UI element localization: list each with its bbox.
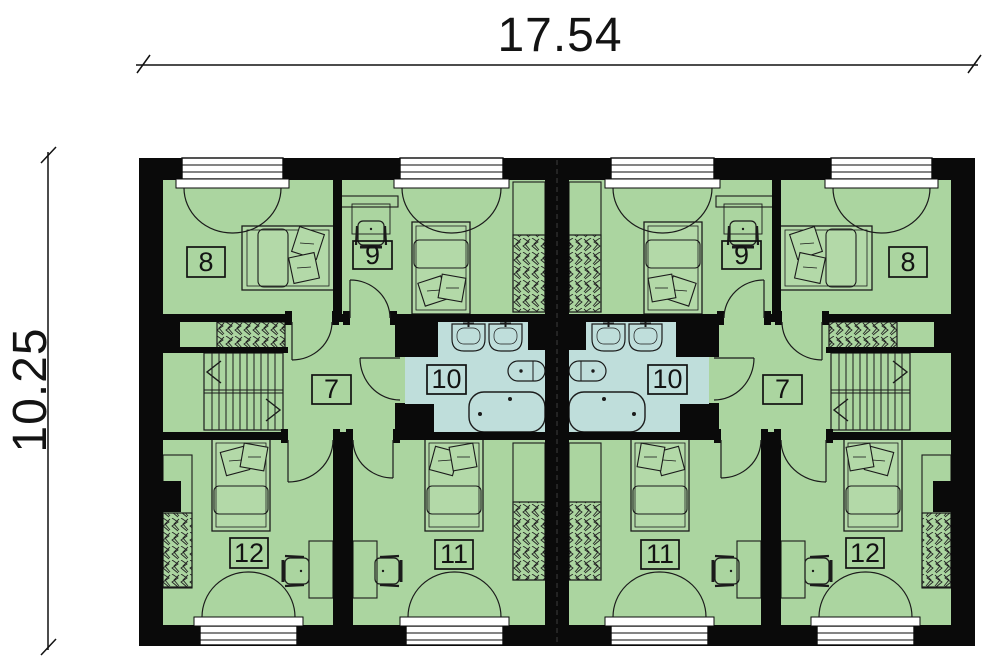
room-label-12-left: 12 (230, 538, 268, 568)
unit-right-mirror (557, 158, 975, 646)
room-number: 12 (234, 538, 264, 568)
floor-plan-svg: 8 9 7 10 11 12 10 7 (0, 0, 991, 664)
room-number: 11 (440, 539, 468, 569)
room-label-12-right: 12 (846, 538, 884, 568)
bed-icon (412, 222, 470, 314)
bed-icon (212, 439, 270, 531)
room-label-11-right: 11 (641, 539, 679, 569)
dimension-left: 10.25 (4, 147, 57, 655)
room-number: 8 (900, 247, 915, 277)
bed-icon (242, 226, 334, 290)
room-number: 7 (775, 374, 790, 404)
height-dimension-label: 10.25 (4, 327, 57, 452)
room-number: 9 (365, 240, 380, 270)
bed-icon (425, 439, 483, 531)
room-label-11-left: 11 (435, 539, 473, 569)
room-label-10-right: 10 (648, 364, 687, 394)
room-number: 12 (850, 538, 880, 568)
room-number: 10 (431, 364, 461, 394)
floor-plan-page: 8 9 7 10 11 12 10 7 (0, 0, 991, 664)
room-number: 11 (646, 539, 674, 569)
room-number: 7 (324, 374, 339, 404)
unit-left (139, 158, 557, 646)
room-label-10-left: 10 (427, 364, 466, 394)
closet-icon (217, 322, 285, 348)
room-number: 9 (734, 240, 749, 270)
width-dimension-label: 17.54 (497, 9, 622, 62)
room-number: 8 (198, 247, 213, 277)
room-number: 10 (652, 364, 682, 394)
dimension-top: 17.54 (136, 9, 981, 73)
